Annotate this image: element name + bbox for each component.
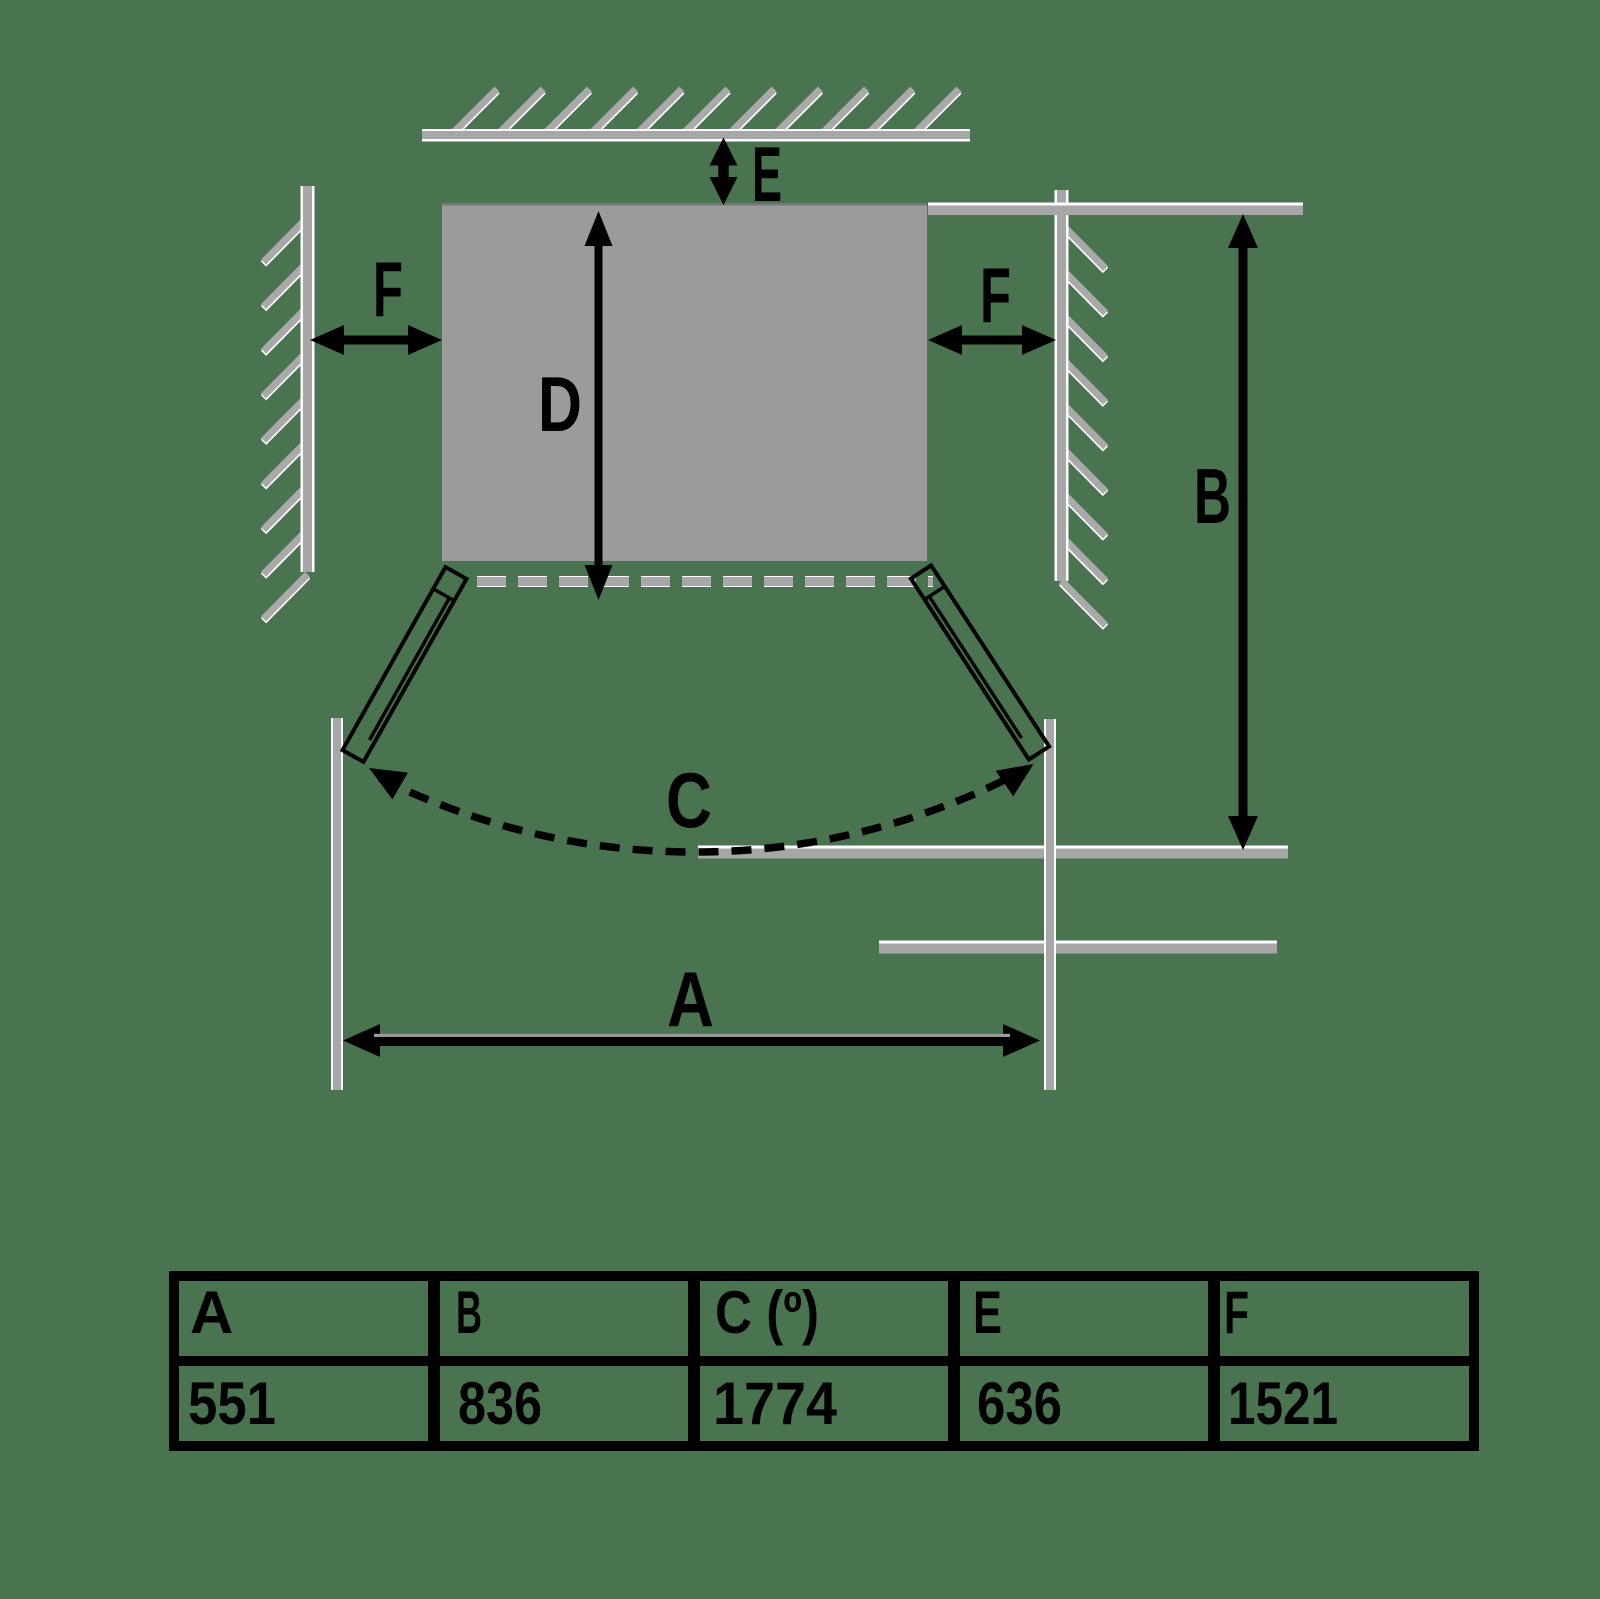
svg-text:F: F — [373, 245, 403, 333]
svg-text:C (º): C (º) — [715, 1279, 819, 1346]
svg-text:1521: 1521 — [1228, 1370, 1338, 1437]
svg-text:F: F — [980, 251, 1011, 339]
svg-text:D: D — [538, 360, 582, 448]
svg-text:A: A — [667, 955, 714, 1043]
svg-text:836: 836 — [458, 1370, 542, 1437]
svg-text:F: F — [1224, 1279, 1249, 1346]
svg-text:B: B — [1194, 452, 1231, 540]
svg-text:E: E — [752, 130, 782, 218]
svg-text:A: A — [190, 1279, 233, 1346]
svg-text:B: B — [456, 1279, 482, 1346]
svg-text:E: E — [973, 1279, 1002, 1346]
svg-text:551: 551 — [188, 1370, 276, 1437]
svg-text:1774: 1774 — [713, 1370, 838, 1437]
svg-text:C: C — [666, 756, 712, 844]
svg-text:636: 636 — [977, 1370, 1062, 1437]
